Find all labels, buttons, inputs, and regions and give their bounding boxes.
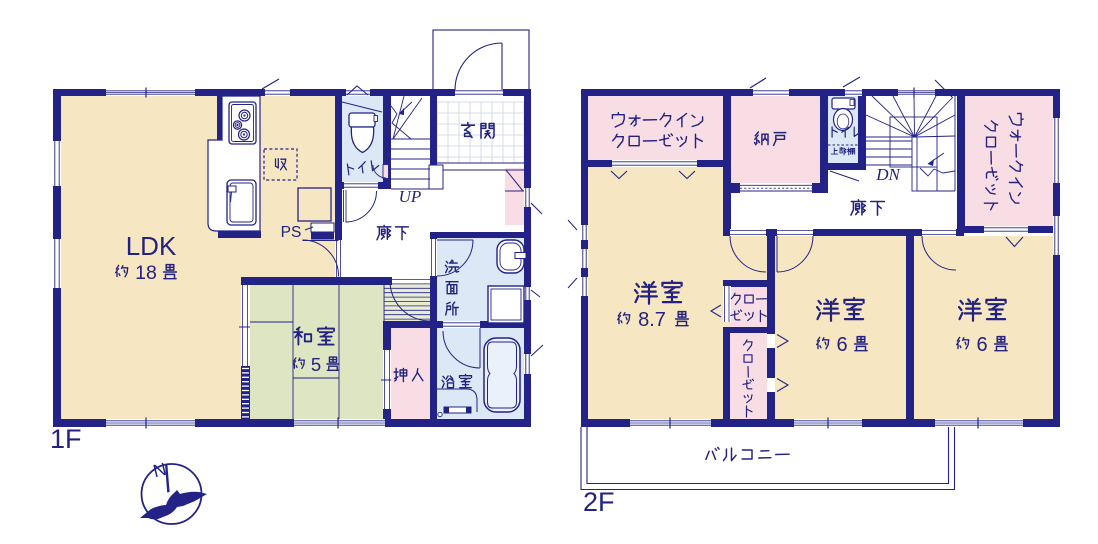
svg-text:1F: 1F <box>50 424 82 454</box>
svg-text:LDK: LDK <box>126 231 177 261</box>
svg-text:N: N <box>151 459 168 482</box>
svg-text:2F: 2F <box>583 487 615 517</box>
svg-text:UP: UP <box>399 187 422 206</box>
svg-text:5: 5 <box>311 354 321 375</box>
svg-text:6: 6 <box>976 334 987 356</box>
svg-text:8.7: 8.7 <box>638 309 666 331</box>
svg-text:DN: DN <box>875 165 901 184</box>
svg-text:6: 6 <box>836 334 847 356</box>
svg-text:PS: PS <box>281 224 302 241</box>
svg-text:18: 18 <box>135 262 157 284</box>
